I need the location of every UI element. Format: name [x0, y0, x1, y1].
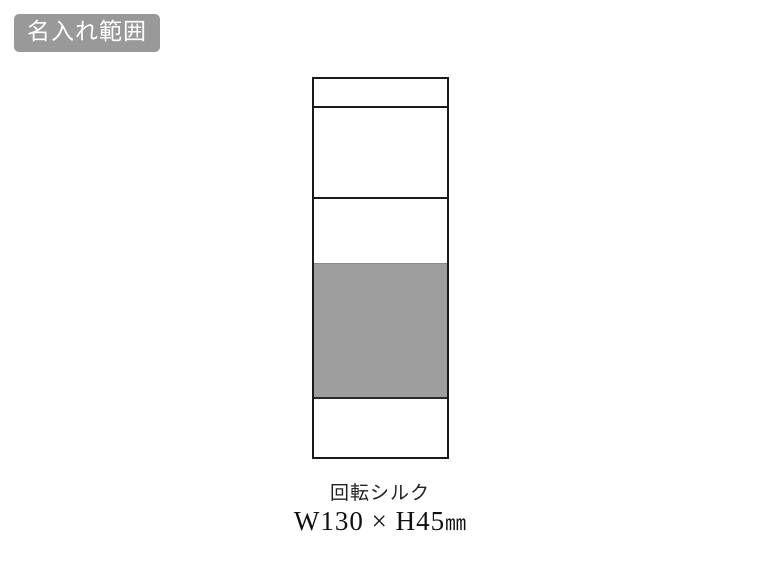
print-dimensions-unit: ㎜ [445, 511, 466, 535]
print-dimensions-label: W130 × H45㎜ [0, 506, 760, 537]
print-method-label: 回転シルク [0, 478, 760, 505]
product-outline-diagram [312, 77, 449, 459]
print-area-shaded-region [314, 263, 447, 399]
product-section-middle [314, 199, 447, 263]
product-section-bottom [314, 399, 447, 457]
caption: 回転シルク W130 × H45㎜ [0, 478, 760, 537]
product-section-upper [314, 108, 447, 199]
name-print-range-badge: 名入れ範囲 [14, 14, 160, 52]
page: 名入れ範囲 回転シルク W130 × H45㎜ [0, 0, 760, 570]
print-dimensions-value: W130 × H45 [294, 506, 445, 536]
product-section-lid [314, 79, 447, 108]
